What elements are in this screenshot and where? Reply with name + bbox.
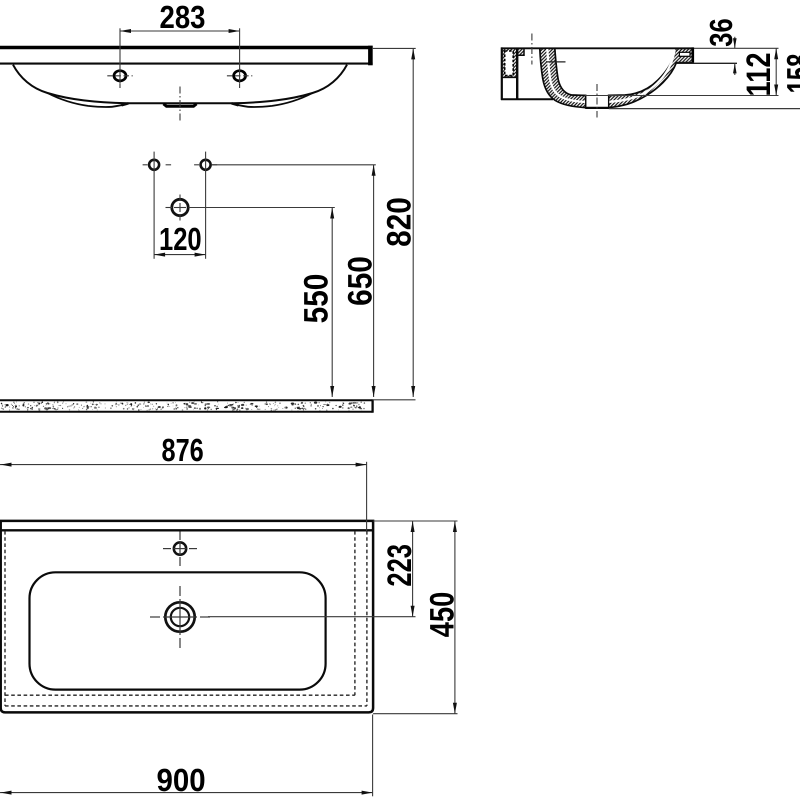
- svg-text:650: 650: [342, 256, 380, 306]
- svg-text:223: 223: [381, 544, 419, 587]
- svg-text:820: 820: [381, 197, 419, 247]
- svg-text:550: 550: [298, 274, 336, 324]
- svg-text:450: 450: [424, 592, 462, 637]
- svg-text:36: 36: [703, 18, 739, 46]
- svg-text:283: 283: [160, 0, 206, 35]
- svg-text:876: 876: [162, 432, 204, 468]
- svg-text:120: 120: [159, 221, 202, 257]
- svg-text:112: 112: [740, 53, 778, 97]
- svg-text:158: 158: [781, 54, 800, 94]
- svg-text:900: 900: [156, 762, 205, 798]
